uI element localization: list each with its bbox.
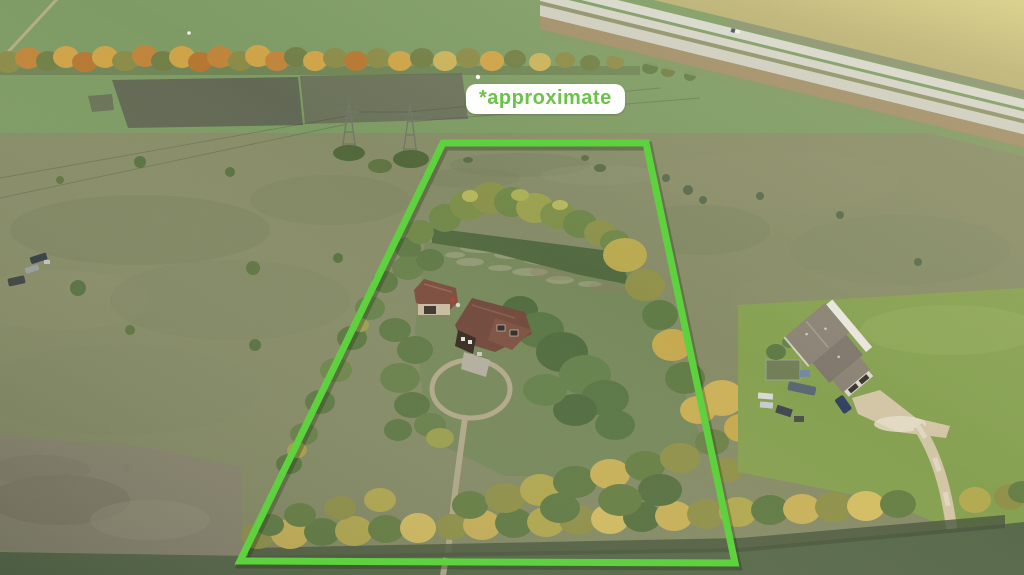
aerial-photo: *approximate — [0, 0, 1024, 575]
approximate-label: *approximate — [466, 84, 625, 114]
approximate-label-text: *approximate — [479, 87, 612, 109]
